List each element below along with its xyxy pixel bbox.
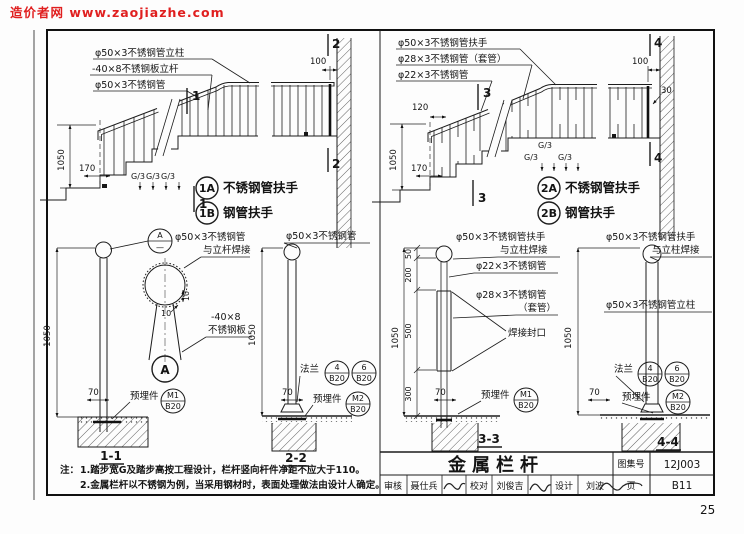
variant-label-1b: 钢管扶手 [223,205,274,220]
wall-hatch [660,36,674,240]
page-corner-number: 25 [700,503,715,517]
label-embed: 预埋件 [313,393,342,405]
break-gap [597,76,608,140]
baluster-spacing-dims: G/3 G/3 G/3 [524,141,578,171]
material-labels: φ50×3不锈钢管立柱 -40×8不锈钢板立杆 φ50×3不锈钢管 [90,47,250,110]
section-mark-1: 1 [192,89,200,103]
leader [452,338,506,371]
leader [305,405,313,416]
dim-text-g3: G/3 [161,172,175,181]
part-atlas: B20 [350,405,366,414]
signature-scribble [530,484,551,491]
label-weld-post: 与立杆焊接 [203,244,251,256]
label-sleeve-sub: （套管） [518,302,556,314]
designer-role: 设计 [555,480,573,492]
dim-text-70: 70 [589,388,600,398]
dim-text-200: 200 [404,267,413,282]
dim-text-300: 300 [404,386,413,401]
atlas-no-value: 12J003 [664,459,701,471]
label-flange: 法兰 [614,363,633,375]
part-mark: 6 [361,363,366,372]
detail-bubble-bottom: — [156,243,164,252]
part-mark: 4 [334,363,339,372]
watermark-text: 造价者网 www.zaojiazhe.com [10,5,225,20]
handrail-section [436,246,452,262]
label-pipe28: φ28×3不锈钢管 [476,289,546,301]
break-gap [259,74,271,140]
variant-tag-1a: 1A [199,182,216,195]
dim-text-1050: 1050 [248,324,258,346]
detail-1-1: A — 1050 φ50×3不锈钢管 与立杆焊接 70 预埋件 M1 B20 1… [43,229,251,464]
part-atlas: B20 [670,403,686,412]
part-mark: 6 [674,364,679,373]
notes-line-1: 1.踏步宽G及踏步高按工程设计，栏杆竖向杆件净距不应大于110。 [80,464,365,476]
flange-plate [281,404,303,412]
detail-3-3: 1050 50 200 500 300 φ50×3不锈钢管扶手 与立柱焊接 φ2… [391,231,560,451]
sheet-title: 金属栏杆 [447,454,544,476]
label-plate40: -40×8不锈钢板立杆 [92,63,179,75]
dim-text-1050: 1050 [43,325,53,347]
baluster-base [612,134,616,138]
concrete-hatch [272,423,316,451]
dim-text-100: 100 [632,57,648,67]
title-block: 金属栏杆 图集号 12J003 页 B11 审核 聂仕兵 校对 刘俊吉 设计 刘… [380,452,714,495]
baluster-base [102,184,107,188]
concrete-hatch [432,423,478,451]
handrail-top-inner [505,88,653,108]
handrail-section [96,242,112,258]
dim-text-70: 70 [282,388,293,398]
dim-text-70: 70 [435,388,446,398]
dim-text-10: 10 [161,309,171,318]
dim-text-1050: 1050 [564,327,574,349]
label-embed: 预埋件 [622,391,651,403]
variant-label-2a: 不锈钢管扶手 [565,180,641,195]
signature-scribble [600,483,642,490]
label-pipe50: φ50×3不锈钢管 [286,230,356,242]
dim-text-g3: G/3 [538,141,552,150]
label-embed: 预埋件 [481,389,510,401]
label-plate-size: -40×8 [211,312,241,323]
reviewer-role: 审核 [384,480,402,492]
part-atlas: B20 [329,374,345,383]
part-mark: M1 [520,390,532,399]
section-mark-2: 2 [332,157,340,171]
leader [458,401,481,414]
dim-text-70: 70 [88,388,99,398]
dim-text-1050: 1050 [391,327,401,349]
label-pipe50: φ50×3不锈钢管 [95,79,165,91]
section-mark-3: 3 [478,191,486,205]
balusters-landing [224,85,322,136]
dim-text-10: 10 [182,291,191,301]
detail-4-4: 1050 φ50×3不锈钢管扶手 与立柱焊接 φ50×3不锈钢管立柱 法兰 4 … [564,231,712,451]
label-embed: 预埋件 [130,390,159,402]
label-weld-column: 与立柱焊接 [652,244,700,256]
leader [112,402,130,419]
concrete-texture [262,416,352,422]
notes: 注： 1.踏步宽G及踏步高按工程设计，栏杆竖向杆件净距不应大于110。 2.金属… [60,464,385,491]
dim-text-500: 500 [404,323,413,338]
part-mark: M2 [352,394,364,403]
detail-title: 4-4 [657,435,679,449]
dim-text-g3: G/3 [146,172,160,181]
variant-label-2b: 钢管扶手 [565,205,616,220]
label-weld-seal: 焊接封口 [508,327,546,339]
atlas-no-label: 图集号 [617,458,644,470]
dim-text-170: 170 [411,164,427,174]
detail-2-2: φ50×3不锈钢管 1050 法兰 4 B20 6 B20 70 预埋件 M2 … [248,230,376,466]
part-atlas: B20 [165,402,181,411]
notes-line-2: 2.金属栏杆以不锈钢为例，当采用钢材时，表面处理做法由设计人确定。 [80,479,385,491]
leader [297,376,300,402]
label-sleeve28: φ28×3不锈钢管（套管） [398,53,506,65]
atlas-sheet: 造价者网 www.zaojiazhe.com [0,0,744,534]
label-rail50: φ50×3不锈钢管扶手 [606,231,696,243]
section-mark-4: 4 [654,36,662,50]
dim-text-50: 50 [404,249,413,259]
leader [110,241,148,249]
detail-title: 3-3 [478,432,500,446]
plate-edge [173,304,181,360]
designer-name: 刘波 [586,480,604,492]
signature-scribble [444,483,465,489]
detail-title-a: A [160,363,170,377]
label-post50: φ50×3不锈钢管立柱 [95,47,185,59]
label-plate-mat: 不锈钢板 [208,324,247,336]
detail-title: 1-1 [100,449,122,463]
variant-tag-2b: 2B [541,207,557,220]
part-mark: M2 [672,392,684,401]
elevation-stainless-flat-baluster: 1050 170 100 G/3 G/3 G/3 φ50×3不锈钢管立柱 -40… [40,34,351,248]
dim-30-arrow [653,96,660,104]
variant-label-1a: 不锈钢管扶手 [223,180,299,195]
detail-a: 10 10 -40×8 不锈钢板 A [143,258,252,382]
reviewer-name: 聂仕兵 [410,480,437,492]
break-gap [156,99,180,156]
label-pipe22: φ22×3不锈钢管 [398,69,468,81]
part-mark: 4 [647,364,652,373]
detail-title: 2-2 [285,451,307,465]
flange-plate [641,404,663,412]
wall-hatch [337,38,351,248]
detail-bubble-top: A [157,231,163,240]
dim-text-120: 120 [412,103,428,113]
dim-text-1050: 1050 [57,149,67,171]
variant-tag-1b: 1B [199,207,215,220]
variant-labels: 2A 不锈钢管扶手 2B 钢管扶手 [538,177,641,224]
notes-prefix: 注： [60,464,79,476]
part-atlas: B20 [356,374,372,383]
label-weld-column: 与立柱焊接 [500,244,548,256]
label-post50: φ50×3不锈钢管立柱 [606,299,696,311]
section-mark-3: 3 [483,86,491,100]
section-mark-2: 2 [332,37,340,51]
label-pipe50: φ50×3不锈钢管 [175,231,245,243]
dim-text-1050: 1050 [389,149,399,171]
part-atlas: B20 [642,375,658,384]
variant-tag-2a: 2A [541,182,558,195]
baluster-base [304,132,308,136]
material-labels: φ50×3不锈钢管扶手 φ28×3不锈钢管（套管） φ22×3不锈钢管 [396,37,556,111]
dim-text-170: 170 [79,164,95,174]
label-pipe22: φ22×3不锈钢管 [476,260,546,272]
stair-profile-upper [171,136,204,149]
section-mark-4: 4 [654,151,662,165]
label-rail50: φ50×3不锈钢管扶手 [456,231,546,243]
dim-text-g3: G/3 [558,153,572,162]
part-atlas: B20 [669,375,685,384]
plate-edge [149,304,157,360]
checker-role: 校对 [470,480,488,492]
elevation-sleeved-baluster: 1050 170 120 100 30 G/3 G/3 G/3 φ50×3不锈钢… [372,34,674,240]
dim-text-g3: G/3 [131,172,145,181]
baluster-spacing-dims: G/3 G/3 G/3 [131,172,179,190]
checker-name: 刘俊吉 [496,480,523,492]
dim-text-30: 30 [661,86,672,96]
page-no-value: B11 [672,480,693,492]
label-flange: 法兰 [300,363,319,375]
variant-labels: 1A 不锈钢管扶手 1B 钢管扶手 [196,177,299,224]
part-mark: M1 [167,391,179,400]
drawing-canvas: 造价者网 www.zaojiazhe.com [0,0,744,534]
dim-text-100: 100 [310,57,326,67]
part-atlas: B20 [518,401,534,410]
dim-text-g3: G/3 [524,153,538,162]
label-rail50: φ50×3不锈钢管扶手 [398,37,488,49]
balusters-flight [434,90,536,177]
